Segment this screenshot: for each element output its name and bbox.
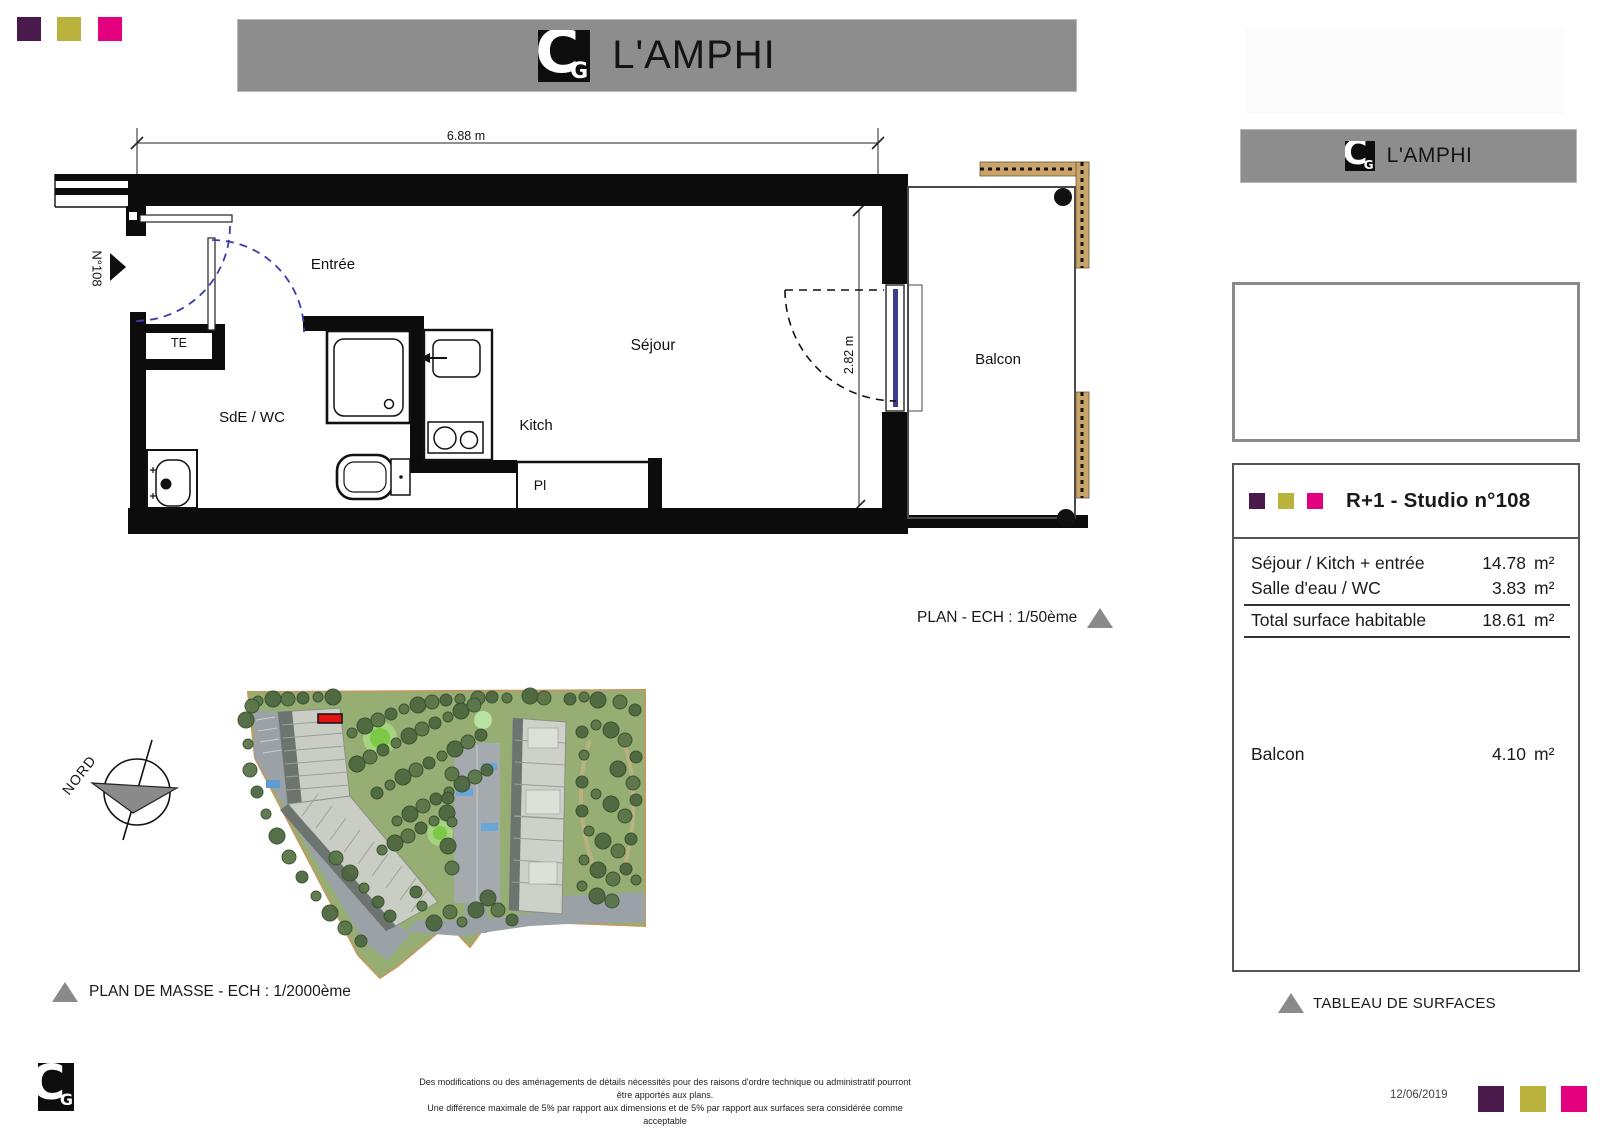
- table-divider: [1244, 604, 1570, 606]
- row-value: 3.83: [1464, 576, 1526, 601]
- room-label-placard: Pl: [515, 477, 565, 493]
- row-unit: m²: [1526, 608, 1568, 633]
- table-balcony-row: Balcon 4.10 m²: [1234, 742, 1578, 767]
- empty-frame-box: [1232, 282, 1580, 442]
- window: [886, 285, 922, 411]
- toilet: [337, 455, 410, 499]
- plan-caption-text: PLAN - ECH : 1/50ème: [917, 609, 1077, 627]
- site-plan-map: [230, 670, 650, 980]
- table-total-row: Total surface habitable 18.61 m²: [1234, 608, 1578, 633]
- palette-square-purple: [1478, 1086, 1504, 1112]
- walls: [55, 174, 1088, 534]
- unit-location-marker: [318, 714, 342, 723]
- room-label-sde-wc: SdE / WC: [202, 409, 302, 426]
- balcony-post: [1054, 188, 1072, 206]
- door-swing-arcs: [135, 226, 304, 332]
- palette-square-olive: [1520, 1086, 1546, 1112]
- triangle-icon: [1278, 993, 1304, 1013]
- triangle-icon: [52, 982, 78, 1002]
- palette-square-purple: [1249, 493, 1265, 509]
- row-value: 14.78: [1464, 551, 1526, 576]
- disclaimer: Des modifications ou des aménagements de…: [415, 1076, 915, 1128]
- room-label-entree: Entrée: [283, 256, 383, 273]
- row-unit: m²: [1526, 551, 1568, 576]
- room-label-sejour: Séjour: [603, 337, 703, 355]
- triangle-icon: [1087, 608, 1113, 628]
- balcony: [908, 162, 1089, 527]
- surface-table: R+1 - Studio n°108 Séjour / Kitch + entr…: [1232, 463, 1580, 972]
- row-label: Salle d'eau / WC: [1251, 576, 1464, 601]
- plan-date: 12/06/2019: [1390, 1089, 1448, 1101]
- washbasin: [147, 450, 197, 508]
- row-label: Séjour / Kitch + entrée: [1251, 551, 1464, 576]
- logo-letter-g: G: [1364, 159, 1374, 171]
- row-unit: m²: [1526, 576, 1568, 601]
- brand-logo-icon: C G: [38, 1063, 74, 1111]
- side-banner-title: L'AMPHI: [1387, 144, 1473, 168]
- disclaimer-line2: Une différence maximale de 5% par rappor…: [415, 1102, 915, 1128]
- surface-table-title: R+1 - Studio n°108: [1346, 489, 1530, 513]
- side-banner: C G L'AMPHI: [1240, 129, 1577, 183]
- surface-table-header: R+1 - Studio n°108: [1234, 465, 1578, 539]
- palette-square-olive: [1278, 493, 1294, 509]
- room-label-kitch: Kitch: [486, 417, 586, 434]
- plan-caption: PLAN - ECH : 1/50ème: [917, 608, 1113, 628]
- row-unit: m²: [1526, 742, 1568, 767]
- entry-jamb-notch: [129, 212, 137, 220]
- row-value: 18.61: [1464, 608, 1526, 633]
- row-label: Balcon: [1251, 742, 1464, 767]
- palette-square-magenta: [1561, 1086, 1587, 1112]
- dimension-width-label: 6.88 m: [416, 129, 516, 143]
- bathroom-door-leaf: [208, 238, 215, 330]
- table-row: Salle d'eau / WC 3.83 m²: [1234, 576, 1578, 601]
- room-label-balcon: Balcon: [948, 351, 1048, 368]
- plan-sheet: C G L'AMPHI: [0, 0, 1600, 1129]
- site-plan-caption-text: PLAN DE MASSE - ECH : 1/2000ème: [89, 983, 351, 1001]
- room-label-te: TE: [154, 336, 204, 350]
- building-b: [509, 718, 566, 914]
- dimension-height-label: 2.82 m: [842, 315, 856, 395]
- brand-logo-icon: C G: [1345, 141, 1375, 171]
- row-label: Total surface habitable: [1251, 608, 1464, 633]
- row-value: 4.10: [1464, 742, 1526, 767]
- shower: [327, 331, 410, 423]
- surface-table-caption-text: TABLEAU DE SURFACES: [1313, 995, 1496, 1012]
- palette-square-magenta: [1307, 493, 1323, 509]
- site-plan-caption: PLAN DE MASSE - ECH : 1/2000ème: [52, 982, 351, 1002]
- balcony-post: [1057, 509, 1075, 527]
- logo-letter-g: G: [60, 1092, 73, 1108]
- disclaimer-line1: Des modifications ou des aménagements de…: [415, 1076, 915, 1102]
- balcony-door-swing: [785, 290, 896, 401]
- surface-table-caption: TABLEAU DE SURFACES: [1278, 993, 1496, 1013]
- unit-entry-arrow-icon: [110, 253, 126, 281]
- entry-door-leaf: [140, 215, 232, 222]
- table-divider: [1244, 636, 1570, 638]
- table-row: Séjour / Kitch + entrée 14.78 m²: [1234, 551, 1578, 576]
- unit-number-label: N°108: [90, 239, 105, 299]
- kitchen-unit: [420, 330, 492, 460]
